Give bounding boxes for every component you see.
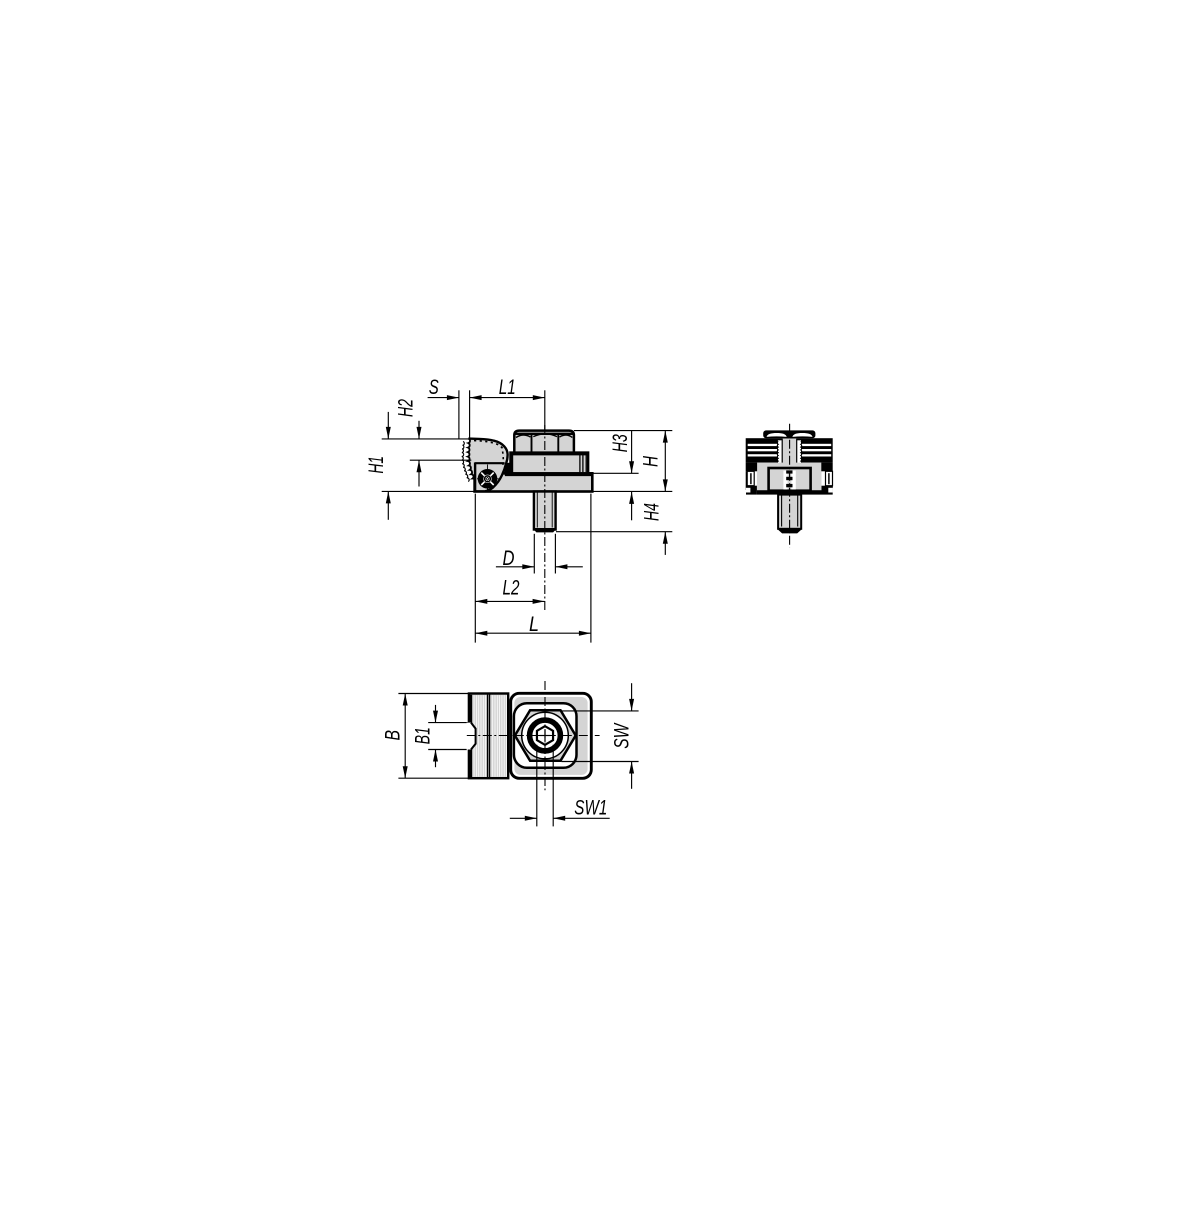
svg-text:H1: H1 [364,456,388,474]
svg-text:L: L [529,612,539,636]
svg-text:H4: H4 [640,503,664,521]
svg-text:H3: H3 [608,434,632,452]
svg-text:L2: L2 [503,576,520,600]
svg-text:B1: B1 [410,727,434,744]
svg-text:H: H [639,456,663,467]
svg-text:L1: L1 [499,375,516,399]
svg-text:H2: H2 [394,399,418,417]
svg-text:D: D [503,546,515,570]
svg-text:SW: SW [610,722,634,748]
svg-text:B: B [381,730,405,741]
svg-text:S: S [429,375,439,399]
svg-text:SW1: SW1 [574,796,607,820]
